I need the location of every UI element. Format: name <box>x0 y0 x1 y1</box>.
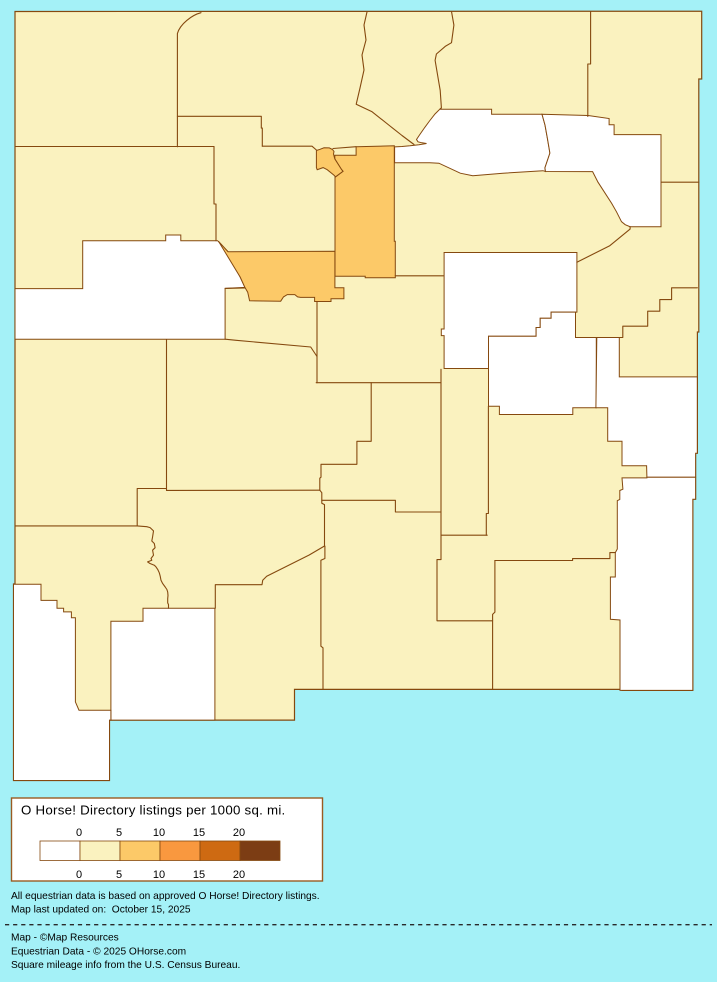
svg-text:Map last updated on: October: Map last updated on: October 15, 2025 <box>11 905 191 916</box>
svg-text:All equestrian data is based o: All equestrian data is based on approved… <box>11 891 320 902</box>
svg-text:15: 15 <box>193 869 205 881</box>
svg-text:O Horse! Directory listings pe: O Horse! Directory listings per 1000 sq.… <box>21 803 285 818</box>
svg-text:20: 20 <box>233 869 245 881</box>
svg-text:5: 5 <box>116 827 122 839</box>
svg-text:0: 0 <box>76 827 82 839</box>
svg-text:Map - ©Map Resources: Map - ©Map Resources <box>11 933 119 944</box>
svg-text:Equestrian Data - © 2025 OHors: Equestrian Data - © 2025 OHorse.com <box>11 947 186 958</box>
svg-text:20: 20 <box>233 827 245 839</box>
svg-text:0: 0 <box>76 869 82 881</box>
svg-text:Square mileage info from the U: Square mileage info from the U.S. Census… <box>11 960 240 971</box>
svg-text:5: 5 <box>116 869 122 881</box>
svg-text:10: 10 <box>153 869 165 881</box>
svg-text:15: 15 <box>193 827 205 839</box>
svg-text:10: 10 <box>153 827 165 839</box>
